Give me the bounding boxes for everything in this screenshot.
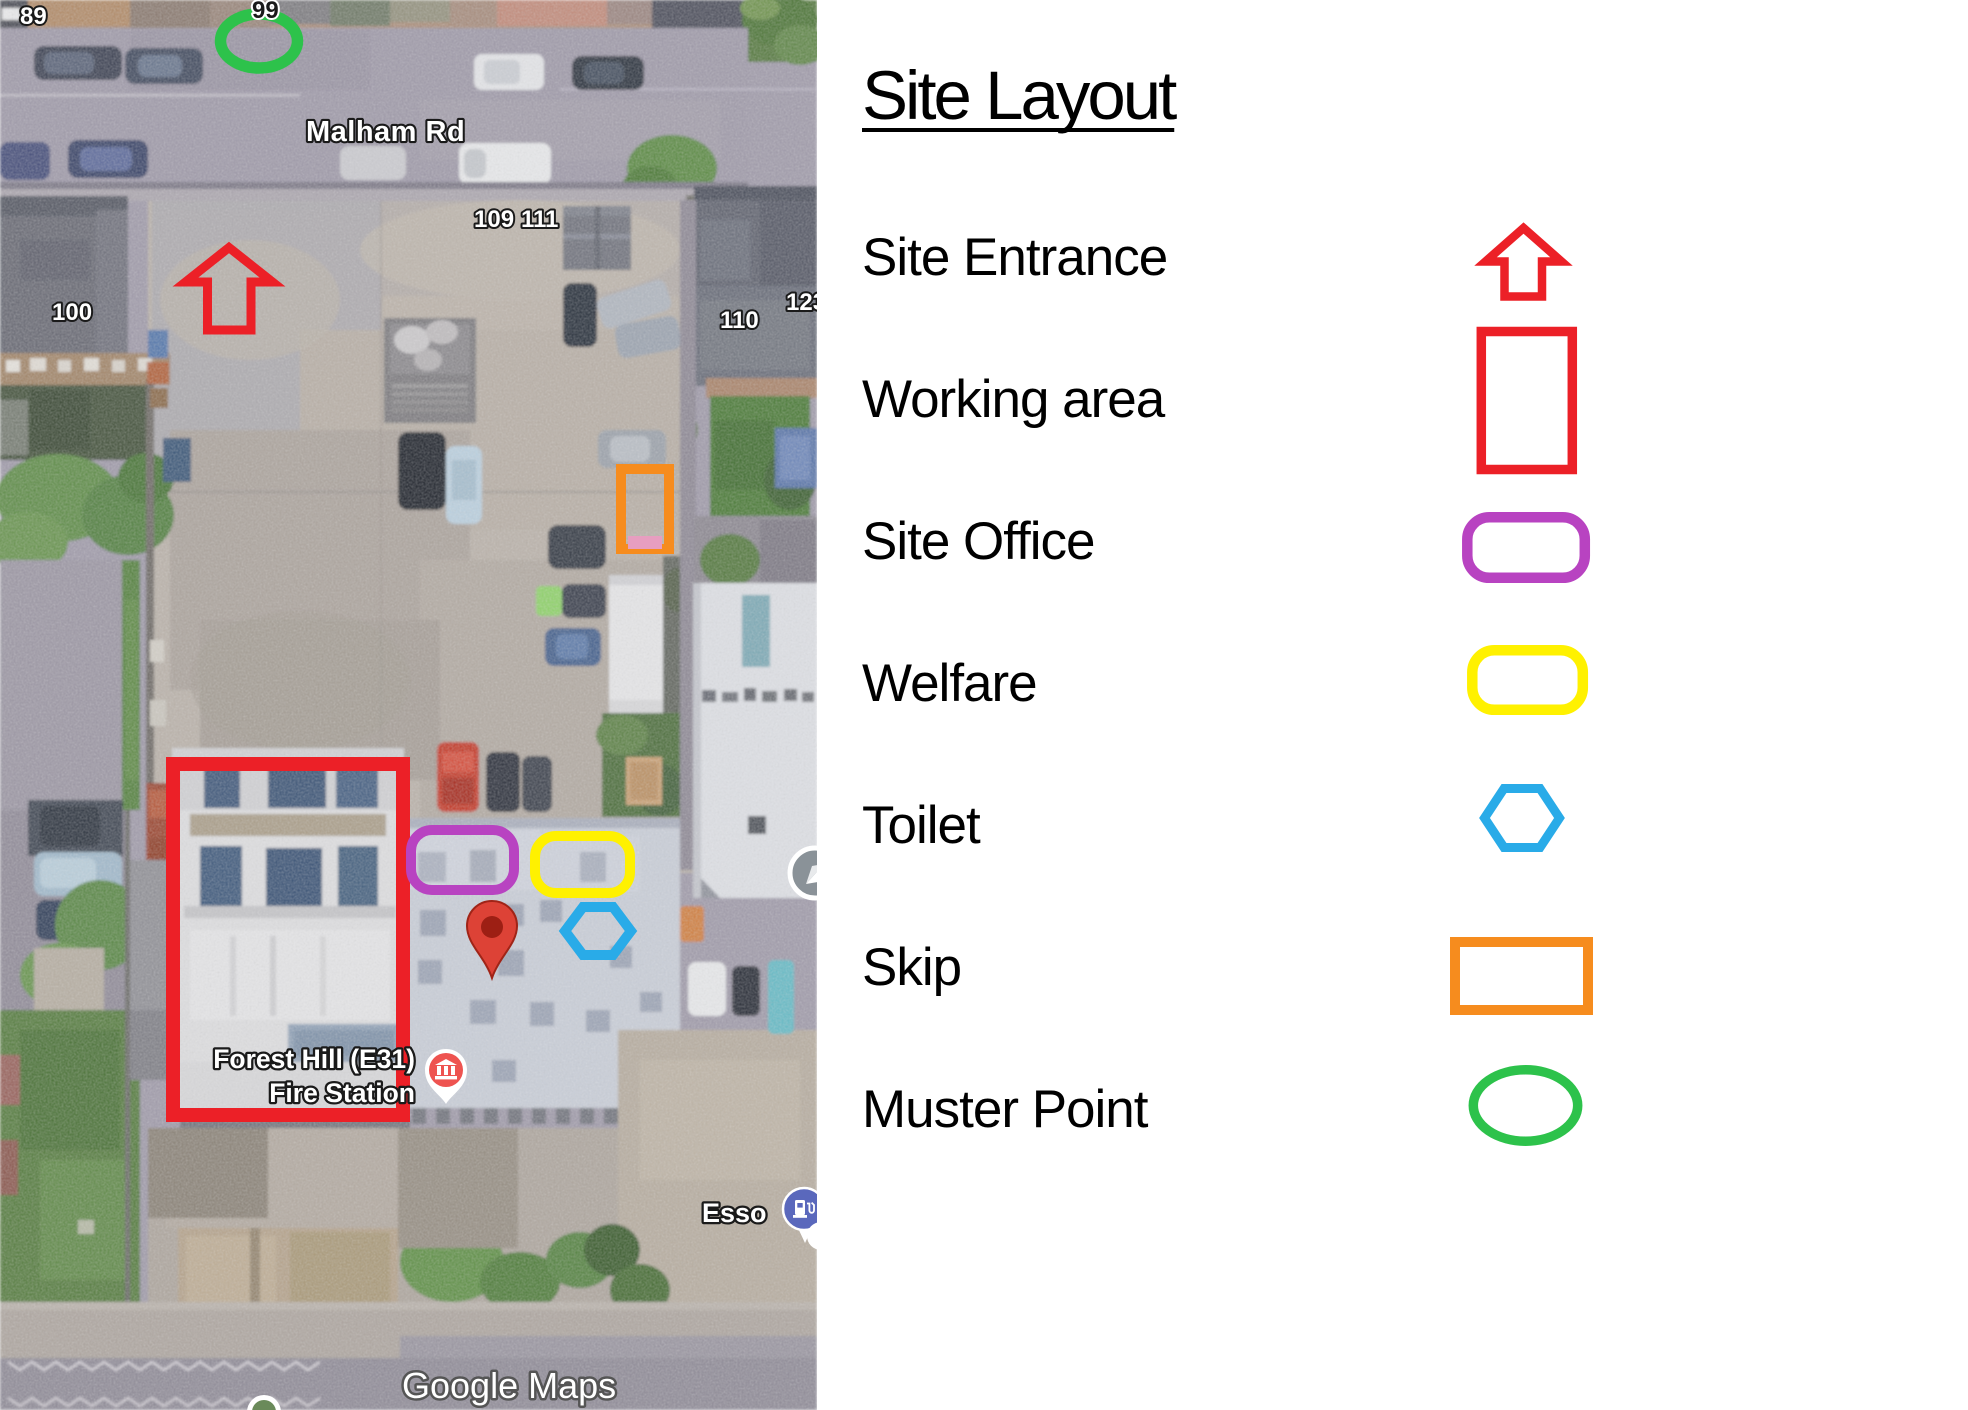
svg-text:89: 89 [20,3,47,30]
svg-text:Fire Station: Fire Station [269,1078,415,1108]
svg-text:110: 110 [720,307,759,334]
svg-text:Esso: Esso [702,1198,767,1228]
svg-text:100: 100 [52,299,92,326]
svg-text:109: 109 [474,206,514,233]
svg-text:Malham Rd: Malham Rd [306,116,465,148]
svg-text:99: 99 [252,0,279,24]
svg-text:Google Maps: Google Maps [402,1365,616,1406]
svg-text:111: 111 [521,206,558,233]
svg-text:123: 123 [786,289,817,316]
svg-text:Forest Hill (E31): Forest Hill (E31) [213,1044,415,1074]
